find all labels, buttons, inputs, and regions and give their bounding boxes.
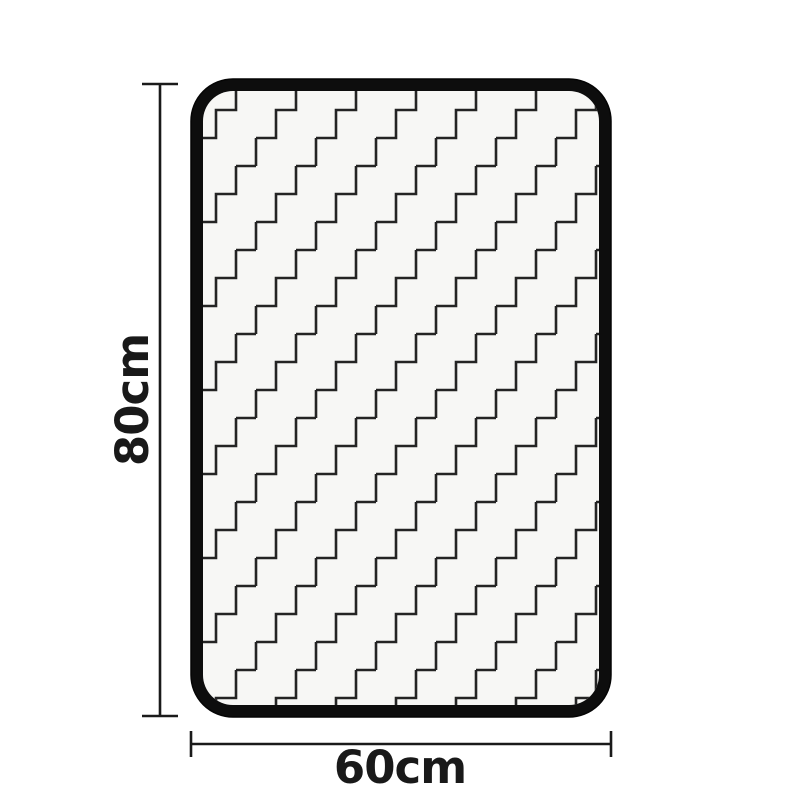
height-dimension-label: 80cm xyxy=(109,300,157,500)
width-dimension-label: 60cm xyxy=(300,744,500,792)
mat-image xyxy=(190,78,612,718)
product-dimension-diagram: 80cm 60cm xyxy=(0,0,800,800)
mat-zigzag-pattern xyxy=(203,91,599,705)
